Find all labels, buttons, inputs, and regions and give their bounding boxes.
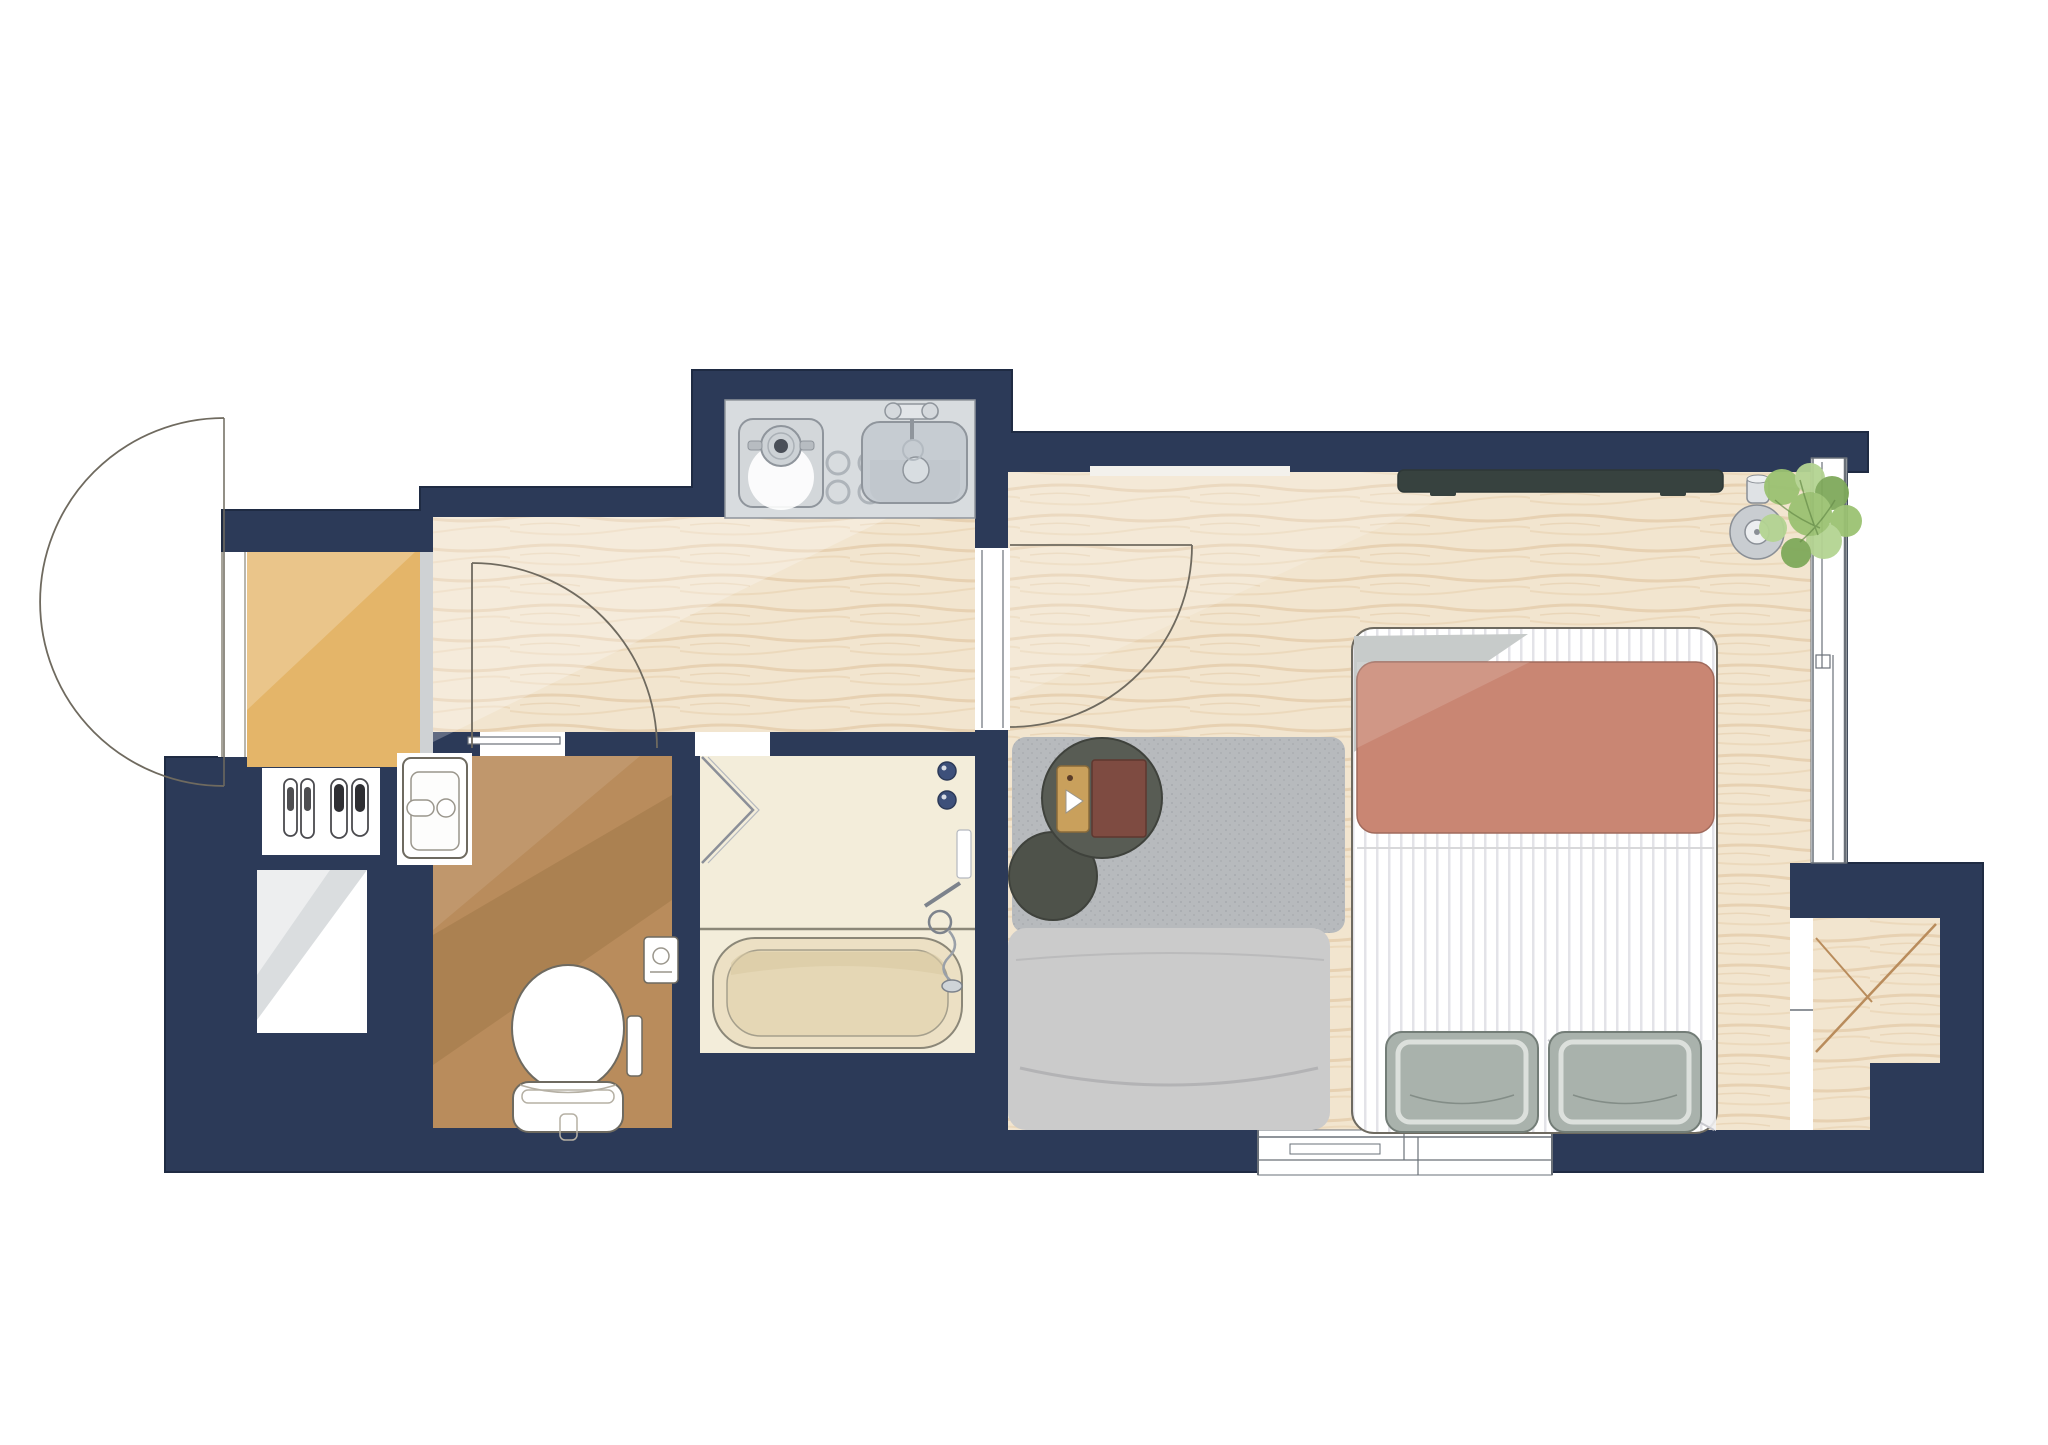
bath-shelf [957,830,971,878]
top-wall-slot [1090,466,1290,476]
burner-handle-left [748,441,762,450]
shower-knob-bottom [938,791,956,809]
shower-knob-dot1 [942,766,947,771]
burner-handle-right [800,441,814,450]
toilet-paper-holder [644,937,678,983]
sink-drain [903,457,929,483]
entry-door [40,418,245,786]
tv-leg-left [1430,490,1456,496]
red-book [1092,760,1146,837]
burner-center [774,439,788,453]
toilet-control-panel [627,1016,642,1076]
alcove-opening [1790,918,1813,1130]
tv-leg-right [1660,490,1686,496]
faucet-knob-left [885,403,901,419]
floor-plan-svg [0,0,2048,1445]
double-bed [1352,628,1717,1133]
pillow-left [1386,1032,1538,1132]
washbasin [403,758,467,858]
faucet-knob-right [922,403,938,419]
daybed-sofa [1008,928,1330,1130]
shower-knob-top [938,762,956,780]
pillow-right [1549,1032,1701,1132]
genkan-threshold-step [420,552,433,767]
tray-dot [1067,775,1073,781]
bath-door-gap [695,732,770,756]
hall-main-opening [975,548,1010,730]
bottom-window [1258,1130,1552,1175]
toilet-sliding-door [468,737,560,744]
floor-plan-page [0,0,2048,1445]
wall-tv [1398,470,1723,492]
shower-knob-dot2 [942,795,947,800]
